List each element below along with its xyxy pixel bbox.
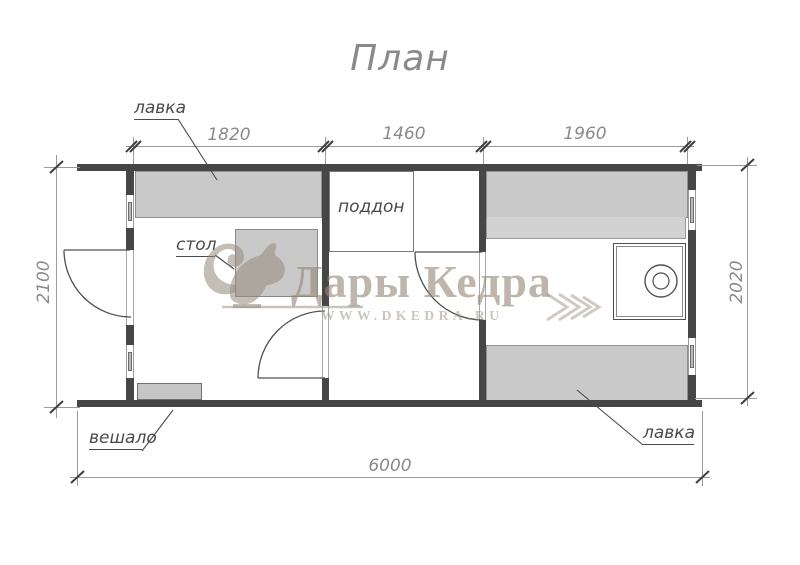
label-bench-top: лавка <box>134 98 178 120</box>
entry-door-swing-arc <box>64 250 131 317</box>
door-2-swing-arc <box>415 252 483 320</box>
dim-top-left-room: 1820 <box>199 125 259 145</box>
dim-top-right-room: 1960 <box>555 124 615 144</box>
dim-bottom-total: 6000 <box>360 456 420 476</box>
label-shower-tray: поддон <box>338 197 404 217</box>
dimension-and-door-linework <box>0 0 800 565</box>
label-leaders <box>142 119 643 451</box>
stove-burner-icon <box>645 265 677 297</box>
dim-top-middle-room: 1460 <box>374 124 434 144</box>
dim-left-depth: 2100 <box>34 254 54 310</box>
label-hanger: вешало <box>89 428 142 450</box>
dim-right-depth: 2020 <box>727 254 747 310</box>
label-bench-bottom: лавка <box>643 423 694 445</box>
door-1-swing-arc <box>258 311 325 378</box>
floor-plan-drawing: План <box>0 0 800 565</box>
label-table: стол <box>176 235 215 257</box>
